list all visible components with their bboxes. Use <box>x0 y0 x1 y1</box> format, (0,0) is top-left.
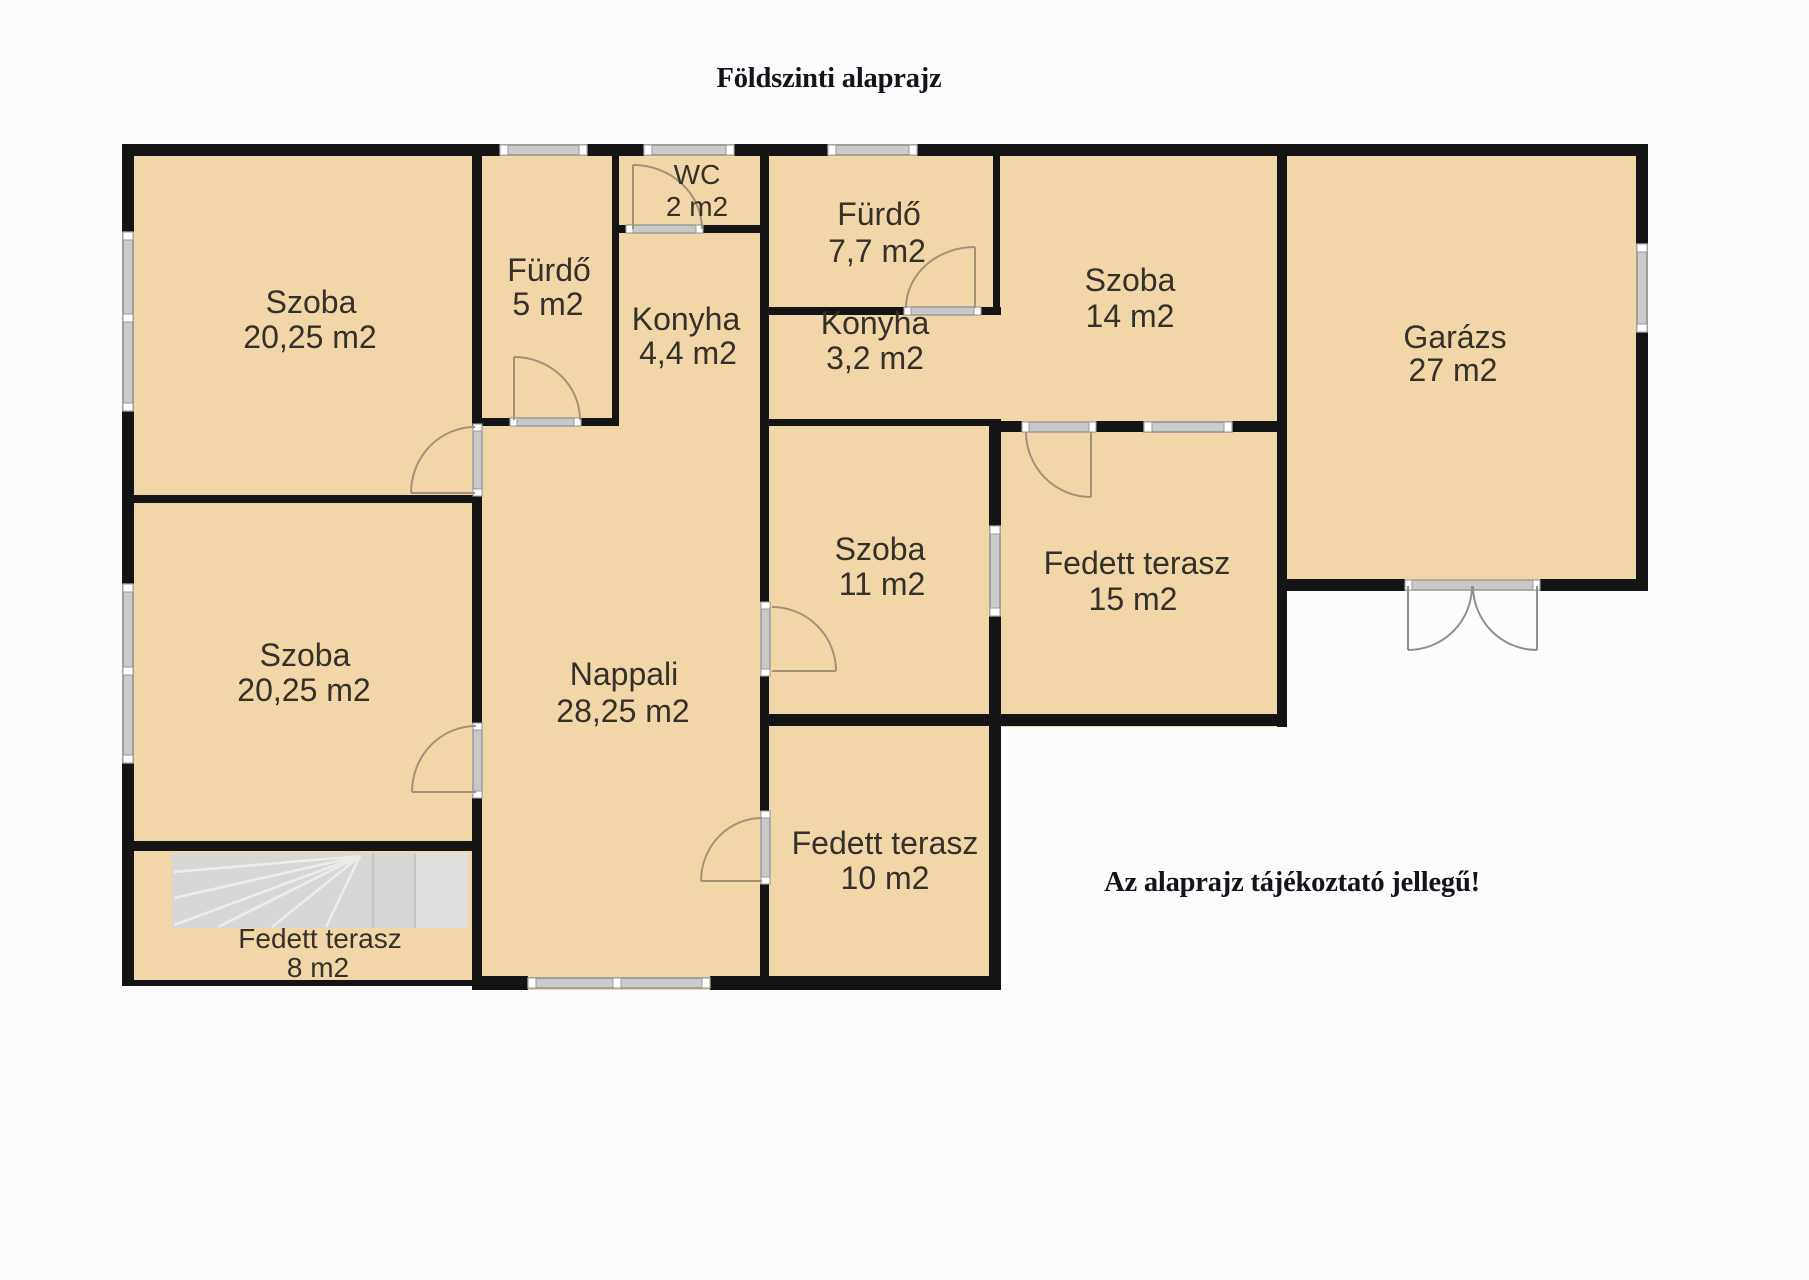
svg-text:Garázs: Garázs <box>1403 319 1506 355</box>
svg-text:4,4 m2: 4,4 m2 <box>639 335 737 371</box>
svg-text:11 m2: 11 m2 <box>839 566 926 602</box>
svg-text:Szoba: Szoba <box>260 637 351 673</box>
svg-text:2 m2: 2 m2 <box>666 191 728 222</box>
svg-text:Konyha: Konyha <box>632 301 741 337</box>
svg-text:Fürdő: Fürdő <box>507 252 591 288</box>
svg-text:27 m2: 27 m2 <box>1409 352 1498 388</box>
svg-text:20,25 m2: 20,25 m2 <box>237 672 370 708</box>
svg-text:Földszinti alaprajz: Földszinti alaprajz <box>717 63 943 94</box>
svg-text:7,7 m2: 7,7 m2 <box>828 233 926 269</box>
svg-text:Fedett terasz: Fedett terasz <box>792 825 979 861</box>
svg-text:Fedett terasz: Fedett terasz <box>1044 545 1231 581</box>
svg-text:15 m2: 15 m2 <box>1089 581 1178 617</box>
svg-text:Az alaprajz tájékoztató jelleg: Az alaprajz tájékoztató jellegű! <box>1104 867 1480 898</box>
svg-text:Konyha: Konyha <box>821 305 930 341</box>
svg-text:20,25 m2: 20,25 m2 <box>243 319 376 355</box>
svg-text:10 m2: 10 m2 <box>841 860 930 896</box>
svg-text:Fedett terasz: Fedett terasz <box>238 923 401 954</box>
svg-text:Szoba: Szoba <box>1085 262 1176 298</box>
svg-text:Nappali: Nappali <box>570 656 679 692</box>
svg-text:Fürdő: Fürdő <box>837 196 921 232</box>
svg-text:5 m2: 5 m2 <box>512 286 583 322</box>
svg-text:WC: WC <box>674 159 721 190</box>
svg-text:Szoba: Szoba <box>835 531 926 567</box>
svg-text:28,25 m2: 28,25 m2 <box>556 693 689 729</box>
svg-text:14 m2: 14 m2 <box>1086 298 1175 334</box>
svg-text:3,2 m2: 3,2 m2 <box>826 340 924 376</box>
svg-text:8 m2: 8 m2 <box>287 952 349 983</box>
svg-text:Szoba: Szoba <box>266 284 357 320</box>
